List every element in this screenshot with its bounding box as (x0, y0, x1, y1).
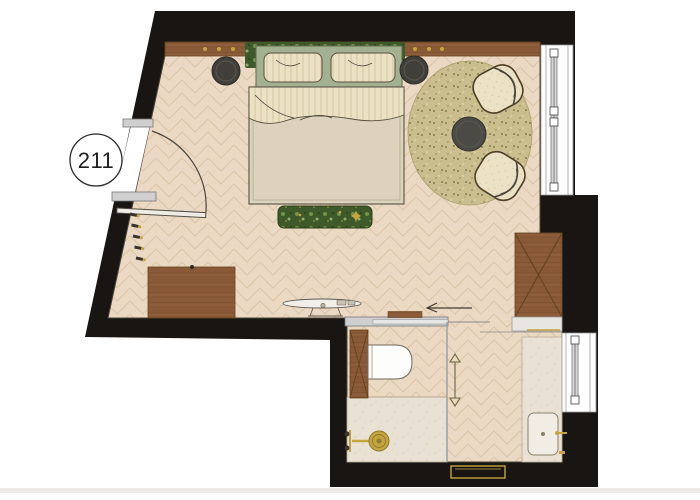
room-number-label: 211 (70, 134, 122, 186)
desk-knob (190, 265, 194, 269)
floor-plan-svg: 211 (0, 0, 700, 500)
pillow-right (331, 53, 395, 82)
window-right-top (541, 45, 573, 195)
room-number-text: 211 (78, 148, 115, 173)
page-edge-shadow (0, 488, 700, 493)
drain (541, 432, 545, 436)
door-jamb-top (123, 119, 153, 127)
coffee-table (452, 117, 486, 151)
window-right-bottom (562, 333, 596, 412)
toilet-bowl (368, 345, 412, 379)
shelf-item (321, 303, 325, 307)
wardrobe-shelf (512, 317, 562, 331)
pillow-left (264, 53, 322, 82)
shelf-item (337, 300, 346, 305)
nightstand-stool-left (212, 57, 240, 85)
floor-plan-page: 211 (0, 0, 700, 500)
shelf-item (348, 301, 355, 306)
double-bed (249, 46, 404, 204)
desk-dresser (148, 265, 235, 318)
shower-floor (347, 397, 447, 462)
door-jamb-bottom (112, 192, 156, 201)
nightstand-stool-right (400, 56, 428, 84)
foot-bench (278, 206, 372, 228)
wardrobe (515, 233, 562, 317)
